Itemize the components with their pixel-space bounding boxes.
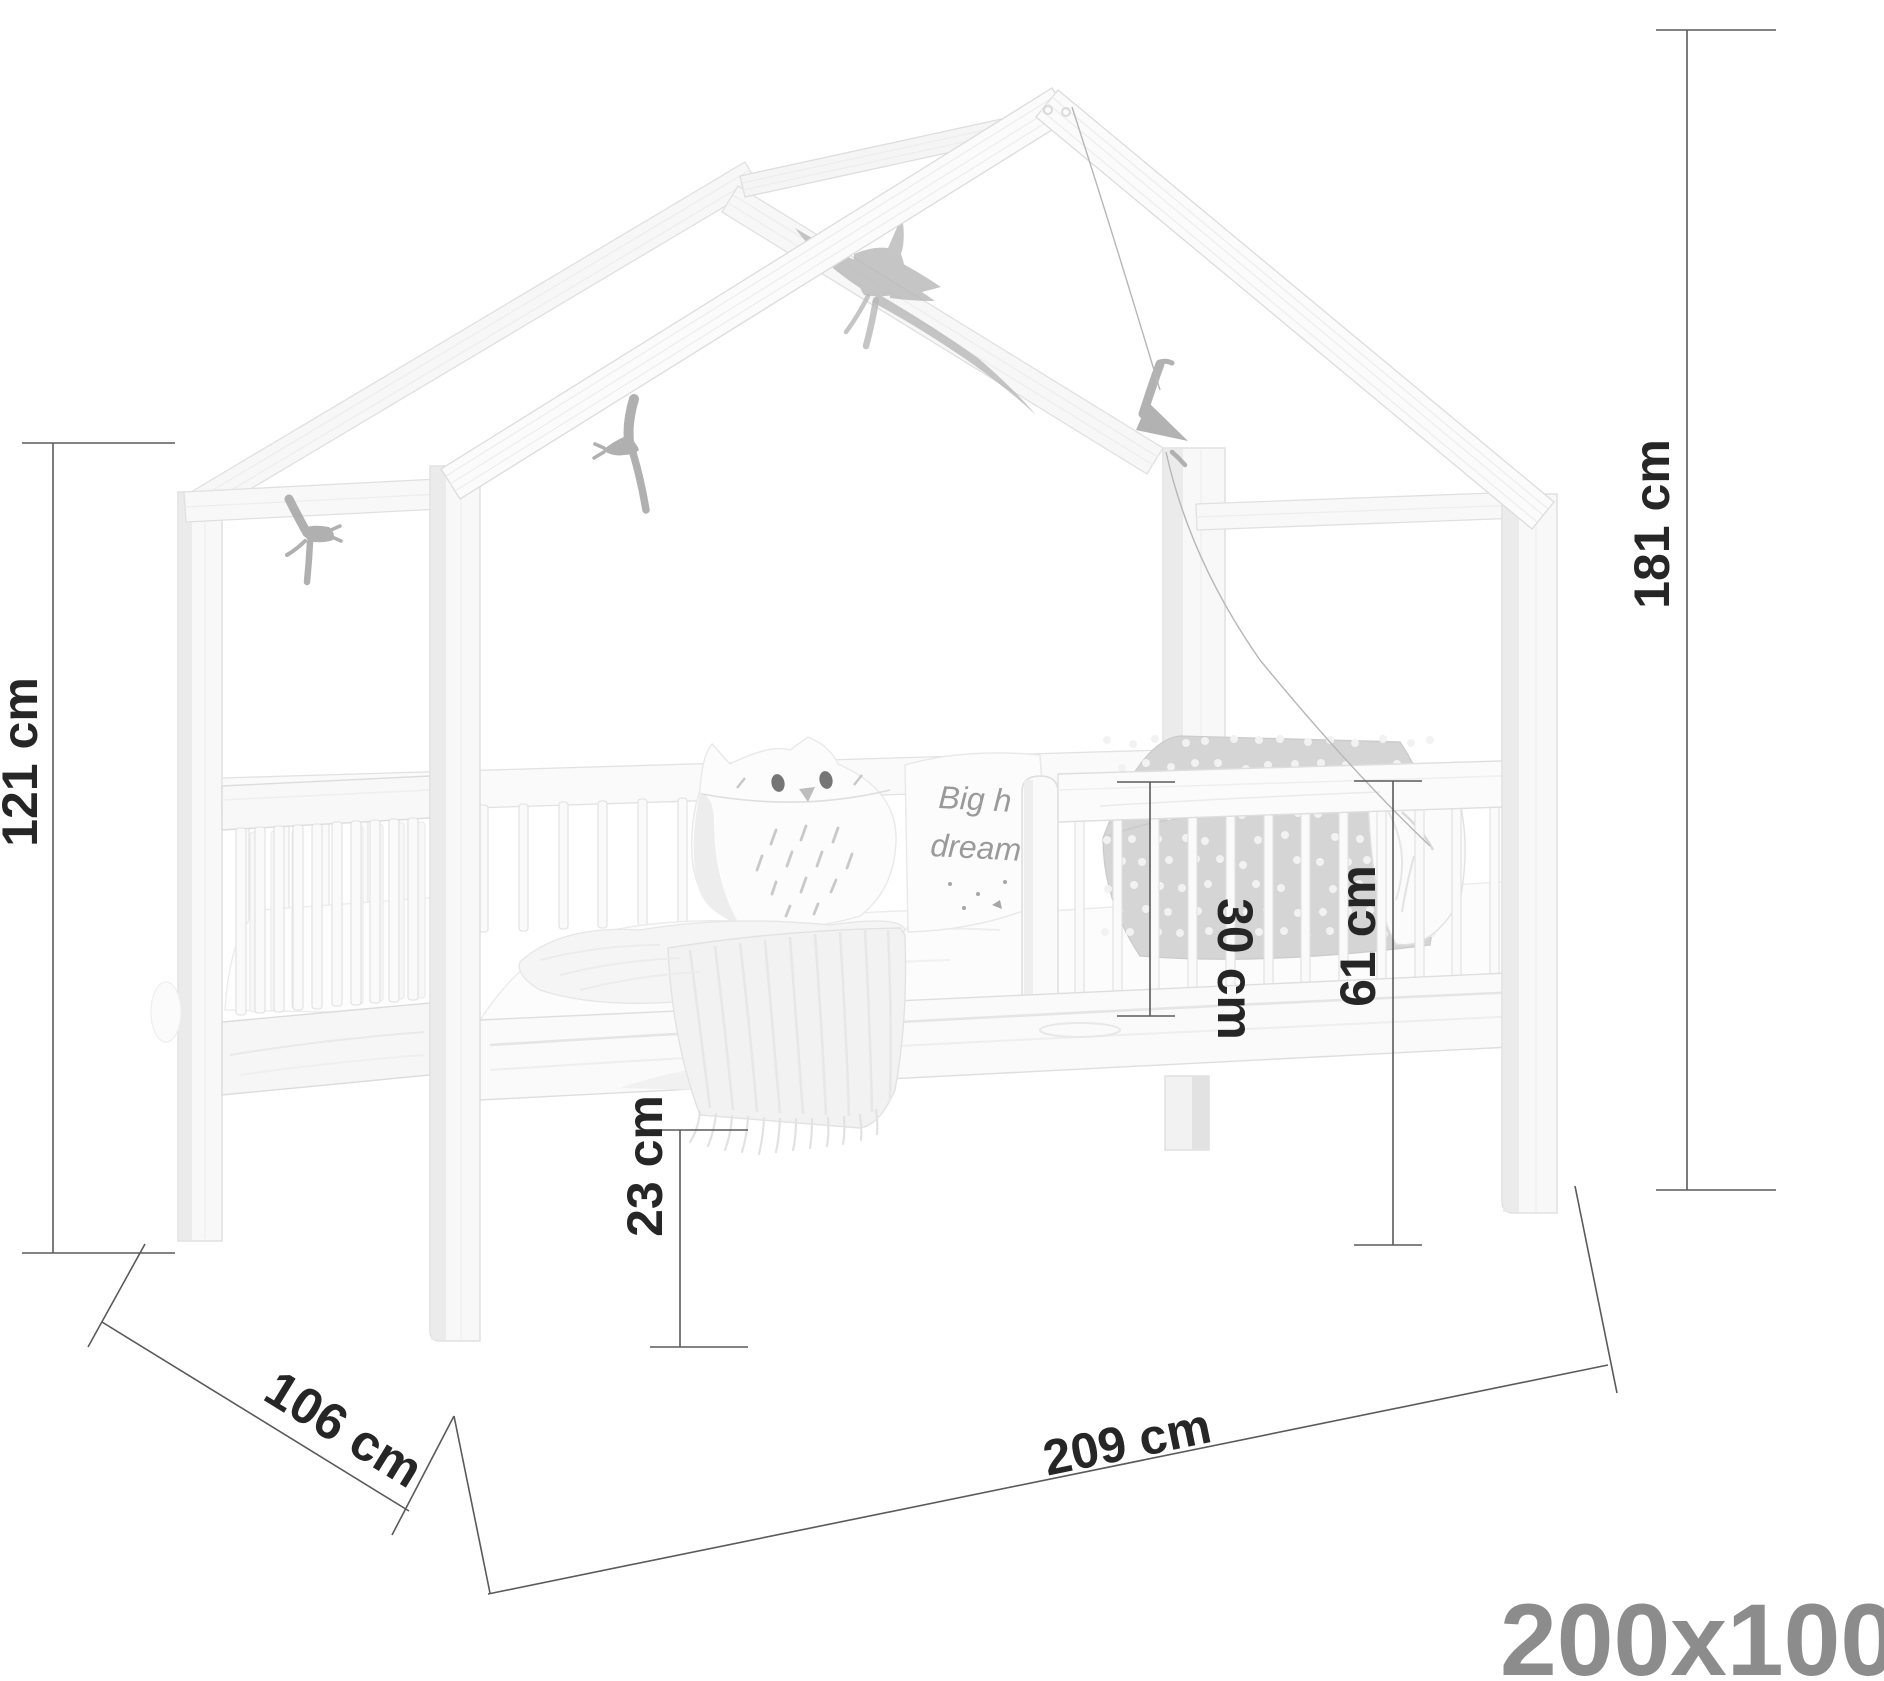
svg-text:61 cm: 61 cm xyxy=(1330,865,1386,1007)
svg-text:30 cm: 30 cm xyxy=(1207,898,1263,1040)
svg-text:Big h: Big h xyxy=(938,779,1013,819)
svg-text:200x100: 200x100 xyxy=(1500,1583,1884,1681)
svg-text:dream: dream xyxy=(930,827,1022,868)
svg-text:121 cm: 121 cm xyxy=(0,677,48,847)
svg-text:181 cm: 181 cm xyxy=(1624,439,1680,609)
svg-text:23 cm: 23 cm xyxy=(617,1095,673,1237)
